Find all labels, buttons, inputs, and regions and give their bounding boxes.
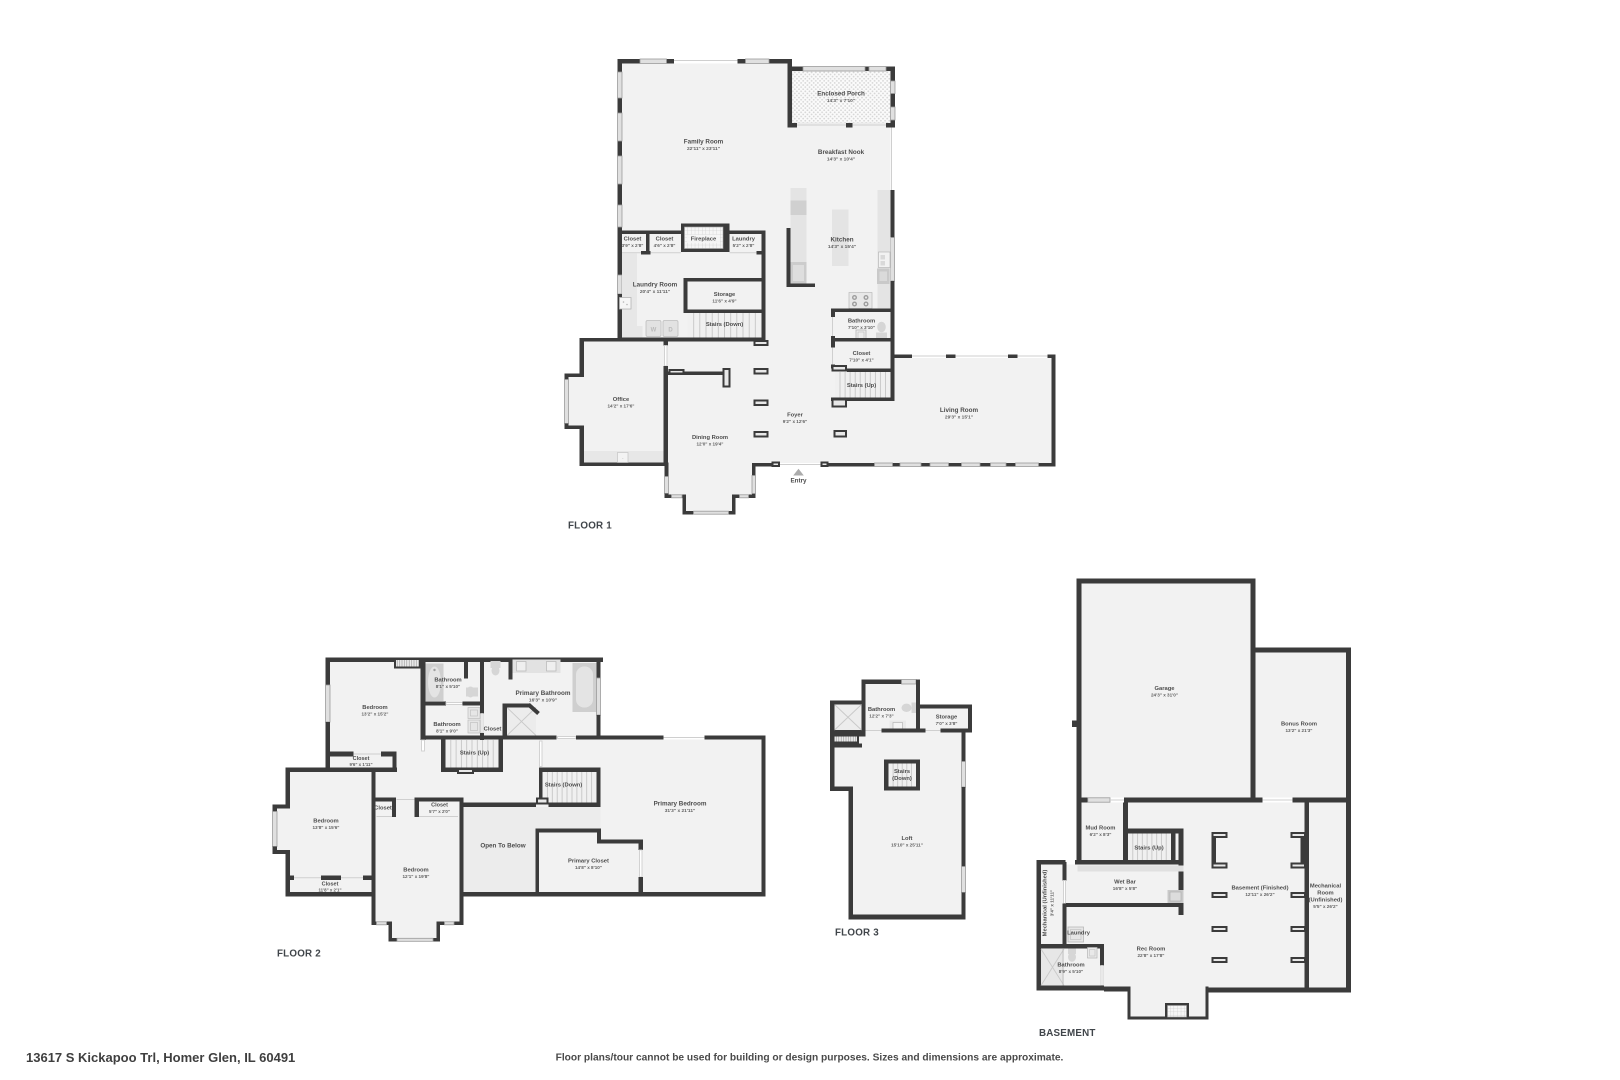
svg-text:Closet: Closet xyxy=(374,806,392,812)
svg-text:D: D xyxy=(668,328,673,334)
svg-text:22'11" x 23'11": 22'11" x 23'11" xyxy=(687,146,720,152)
svg-text:Bathroom: Bathroom xyxy=(1057,963,1084,969)
svg-text:Primary Bathroom: Primary Bathroom xyxy=(516,690,571,697)
svg-text:Mud Room: Mud Room xyxy=(1086,826,1116,832)
svg-text:Stairs (Up): Stairs (Up) xyxy=(1134,846,1163,852)
svg-text:20'4" x 11'11": 20'4" x 11'11" xyxy=(640,289,670,295)
svg-text:Dining Room: Dining Room xyxy=(692,435,728,441)
svg-text:Bathroom: Bathroom xyxy=(433,722,460,728)
svg-text:Stairs (Down): Stairs (Down) xyxy=(706,322,743,328)
svg-text:8'1" x 5'10": 8'1" x 5'10" xyxy=(436,684,460,689)
svg-text:Mechanical (Unfinished): Mechanical (Unfinished) xyxy=(1043,870,1049,937)
svg-text:12'11" x 26'2": 12'11" x 26'2" xyxy=(1245,892,1274,897)
svg-text:W: W xyxy=(651,328,657,334)
svg-text:13'8" x 15'6": 13'8" x 15'6" xyxy=(313,825,340,830)
svg-text:Kitchen: Kitchen xyxy=(830,237,853,244)
svg-text:FLOOR 2: FLOOR 2 xyxy=(277,949,321,960)
svg-text:Wet Bar: Wet Bar xyxy=(1114,880,1137,886)
svg-text:Family Room: Family Room xyxy=(684,139,724,146)
svg-text:Laundry: Laundry xyxy=(732,237,756,243)
svg-text:Living Room: Living Room xyxy=(940,407,979,414)
svg-text:Floor plans/tour cannot be use: Floor plans/tour cannot be used for buil… xyxy=(556,1053,1064,1064)
svg-text:Stairs (Up): Stairs (Up) xyxy=(460,751,489,757)
svg-text:13'2" x 15'2": 13'2" x 15'2" xyxy=(362,711,389,716)
svg-text:Primary Bedroom: Primary Bedroom xyxy=(654,801,707,808)
svg-text:9'6" x 1'11": 9'6" x 1'11" xyxy=(349,762,372,767)
svg-text:11'8" x 2'1": 11'8" x 2'1" xyxy=(318,888,341,893)
svg-text:29'3" x 15'1": 29'3" x 15'1" xyxy=(945,414,973,420)
svg-text:5'2" x 2'8": 5'2" x 2'8" xyxy=(733,243,755,248)
svg-text:16'8" x 5'8": 16'8" x 5'8" xyxy=(1113,886,1137,891)
svg-text:12'0" x 19'4": 12'0" x 19'4" xyxy=(697,441,724,446)
svg-text:5'7" x 2'0": 5'7" x 2'0" xyxy=(429,809,450,814)
svg-text:Bedroom: Bedroom xyxy=(362,705,387,711)
svg-text:Bedroom: Bedroom xyxy=(313,819,338,825)
svg-text:Bedroom: Bedroom xyxy=(403,868,428,874)
svg-text:7'10" x 3'10": 7'10" x 3'10" xyxy=(848,325,875,330)
svg-text:Storage: Storage xyxy=(714,292,736,298)
svg-text:15'10" x 25'11": 15'10" x 25'11" xyxy=(891,842,923,847)
svg-text:(Down): (Down) xyxy=(892,776,912,782)
svg-text:7'10" x 4'1": 7'10" x 4'1" xyxy=(849,357,873,362)
svg-text:9'2" x 12'6": 9'2" x 12'6" xyxy=(783,419,807,424)
svg-text:Closet: Closet xyxy=(656,237,674,243)
svg-text:12'2" x 7'3": 12'2" x 7'3" xyxy=(869,713,893,718)
svg-text:Primary Closet: Primary Closet xyxy=(568,859,609,865)
svg-text:Closet: Closet xyxy=(624,237,642,243)
svg-text:Laundry: Laundry xyxy=(1067,931,1091,937)
svg-text:31'3" x 21'11": 31'3" x 21'11" xyxy=(665,808,696,814)
svg-text:8'1" x 9'0": 8'1" x 9'0" xyxy=(436,728,458,733)
svg-text:Enclosed Porch: Enclosed Porch xyxy=(817,91,865,98)
svg-text:(Unfinished): (Unfinished) xyxy=(1309,898,1343,904)
svg-text:Closet: Closet xyxy=(853,351,871,357)
svg-text:4'6" x 2'8": 4'6" x 2'8" xyxy=(654,243,676,248)
svg-text:5'5" x 26'2": 5'5" x 26'2" xyxy=(1313,904,1337,909)
svg-text:Foyer: Foyer xyxy=(787,413,804,419)
svg-text:3'9" x 2'8": 3'9" x 2'8" xyxy=(622,243,644,248)
svg-text:6'2" x 8'3": 6'2" x 8'3" xyxy=(1090,832,1112,837)
svg-text:Laundry Room: Laundry Room xyxy=(633,282,678,289)
svg-text:16'3" x 10'9": 16'3" x 10'9" xyxy=(529,697,557,703)
svg-text:Closet: Closet xyxy=(484,727,502,733)
svg-text:14'3" x 10'4": 14'3" x 10'4" xyxy=(827,156,855,162)
svg-text:Office: Office xyxy=(613,397,630,403)
svg-text:3'4" x 11'11": 3'4" x 11'11" xyxy=(1050,890,1055,916)
svg-text:Open To Below: Open To Below xyxy=(480,843,525,850)
svg-text:Loft: Loft xyxy=(902,836,913,842)
svg-text:BASEMENT: BASEMENT xyxy=(1039,1028,1096,1039)
svg-text:22'8" x 17'8": 22'8" x 17'8" xyxy=(1138,953,1165,958)
svg-text:Bathroom: Bathroom xyxy=(434,678,461,684)
svg-text:Stairs (Up): Stairs (Up) xyxy=(847,383,876,389)
svg-text:Bathroom: Bathroom xyxy=(868,707,895,713)
svg-text:Closet: Closet xyxy=(353,756,370,762)
svg-text:7'0" x 3'8": 7'0" x 3'8" xyxy=(936,721,958,726)
svg-text:Closet: Closet xyxy=(322,881,339,887)
svg-text:13617 S Kickapoo Trl, Homer Gl: 13617 S Kickapoo Trl, Homer Glen, IL 604… xyxy=(26,1050,295,1065)
svg-text:Rec Room: Rec Room xyxy=(1137,947,1166,953)
svg-text:Mechanical: Mechanical xyxy=(1310,884,1342,890)
svg-text:Closet: Closet xyxy=(431,803,448,809)
svg-text:14'2" x 17'6": 14'2" x 17'6" xyxy=(608,403,635,408)
svg-text:11'6" x 4'9": 11'6" x 4'9" xyxy=(712,298,736,303)
svg-text:12'1" x 19'8": 12'1" x 19'8" xyxy=(403,874,430,879)
svg-text:Bonus Room: Bonus Room xyxy=(1281,722,1317,728)
svg-text:8'9" x 5'10": 8'9" x 5'10" xyxy=(1059,969,1083,974)
svg-text:Breakfast Nook: Breakfast Nook xyxy=(818,149,865,156)
svg-text:Garage: Garage xyxy=(1155,686,1176,692)
svg-text:Fireplace: Fireplace xyxy=(691,236,717,242)
svg-text:Storage: Storage xyxy=(936,715,958,721)
svg-text:14'8" x 8'10": 14'8" x 8'10" xyxy=(575,865,602,870)
svg-text:13'2" x 21'3": 13'2" x 21'3" xyxy=(1286,728,1313,733)
svg-text:Stairs: Stairs xyxy=(894,769,910,775)
svg-text:Bathroom: Bathroom xyxy=(848,319,875,325)
svg-text:FLOOR 3: FLOOR 3 xyxy=(835,928,879,939)
svg-text:14'3" x 15'4": 14'3" x 15'4" xyxy=(828,244,856,250)
svg-text:Room: Room xyxy=(1317,891,1333,897)
svg-text:24'3" x 31'0": 24'3" x 31'0" xyxy=(1151,692,1178,697)
svg-text:14'3" x 7'10": 14'3" x 7'10" xyxy=(827,98,855,104)
svg-text:FLOOR 1: FLOOR 1 xyxy=(568,521,612,532)
svg-text:Basement (Finished): Basement (Finished) xyxy=(1231,886,1288,892)
svg-text:Entry: Entry xyxy=(790,478,807,485)
svg-text:Stairs (Down): Stairs (Down) xyxy=(545,783,582,789)
